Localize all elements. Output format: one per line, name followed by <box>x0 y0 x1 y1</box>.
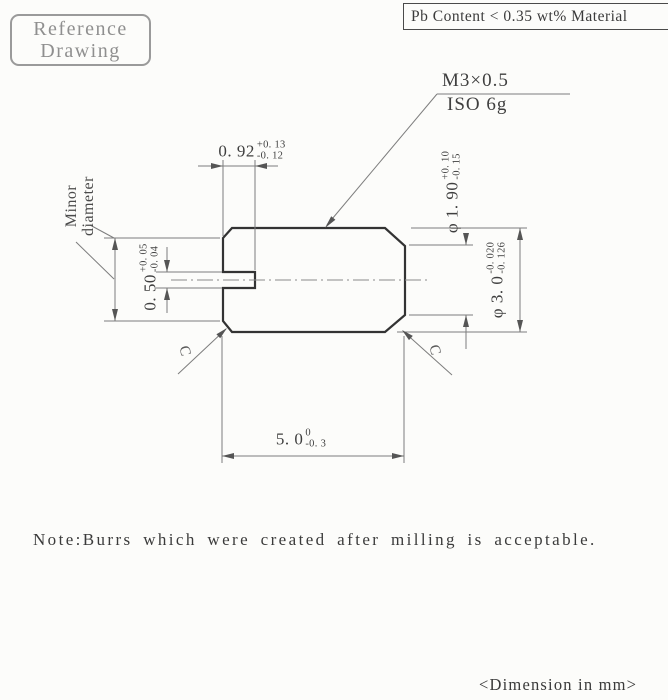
material-note-box: Pb Content < 0.35 wt% Material <box>403 3 668 30</box>
dim-tip-diameter-tolerance: +0. 10 -0. 15 <box>442 151 463 180</box>
dim-body-diameter: φ 3. 0 -0. 020 -0. 126 <box>487 242 508 318</box>
dim-body-diameter-tolerance: -0. 020 -0. 126 <box>487 242 508 274</box>
dim-slot-width-value: 0. 50 <box>140 274 160 311</box>
dimension-unit-note: <Dimension in mm> <box>479 675 637 695</box>
dim-slot-width-tolerance: +0. 05 -0. 04 <box>140 243 161 272</box>
thread-class-label: ISO 6g <box>447 94 507 116</box>
dim-slot-depth-tolerance: +0. 13 -0. 12 <box>257 141 286 162</box>
drawing-canvas <box>0 0 668 700</box>
dim-tip-diameter-value: φ 1. 90 <box>442 182 462 234</box>
dim-tip-diameter: φ 1. 90 +0. 10 -0. 15 <box>442 151 463 233</box>
dim-body-diameter-value: φ 3. 0 <box>487 276 507 319</box>
dim-overall-length-value: 5. 0 <box>276 429 304 449</box>
stamp-line-2: Drawing <box>40 40 120 62</box>
thread-size-label: M3×0.5 <box>442 70 509 92</box>
minor-diameter-label: Minor diameter <box>63 176 97 236</box>
dim-overall-length: 5. 0 0 -0. 3 <box>276 429 326 450</box>
dim-slot-width: 0. 50 +0. 05 -0. 04 <box>140 243 161 310</box>
dim-slot-depth-value: 0. 92 <box>218 141 255 161</box>
dim-slot-depth: 0. 92 +0. 13 -0. 12 <box>218 141 285 162</box>
dim-overall-length-tolerance: 0 -0. 3 <box>305 429 326 450</box>
stamp-line-1: Reference <box>33 18 128 40</box>
material-note-text: Pb Content < 0.35 wt% Material <box>411 8 628 25</box>
dim-slot-depth-lines <box>198 160 278 270</box>
reference-drawing-stamp: Reference Drawing <box>10 14 151 66</box>
drawing-note: Note:Burrs which were created after mill… <box>33 530 597 550</box>
